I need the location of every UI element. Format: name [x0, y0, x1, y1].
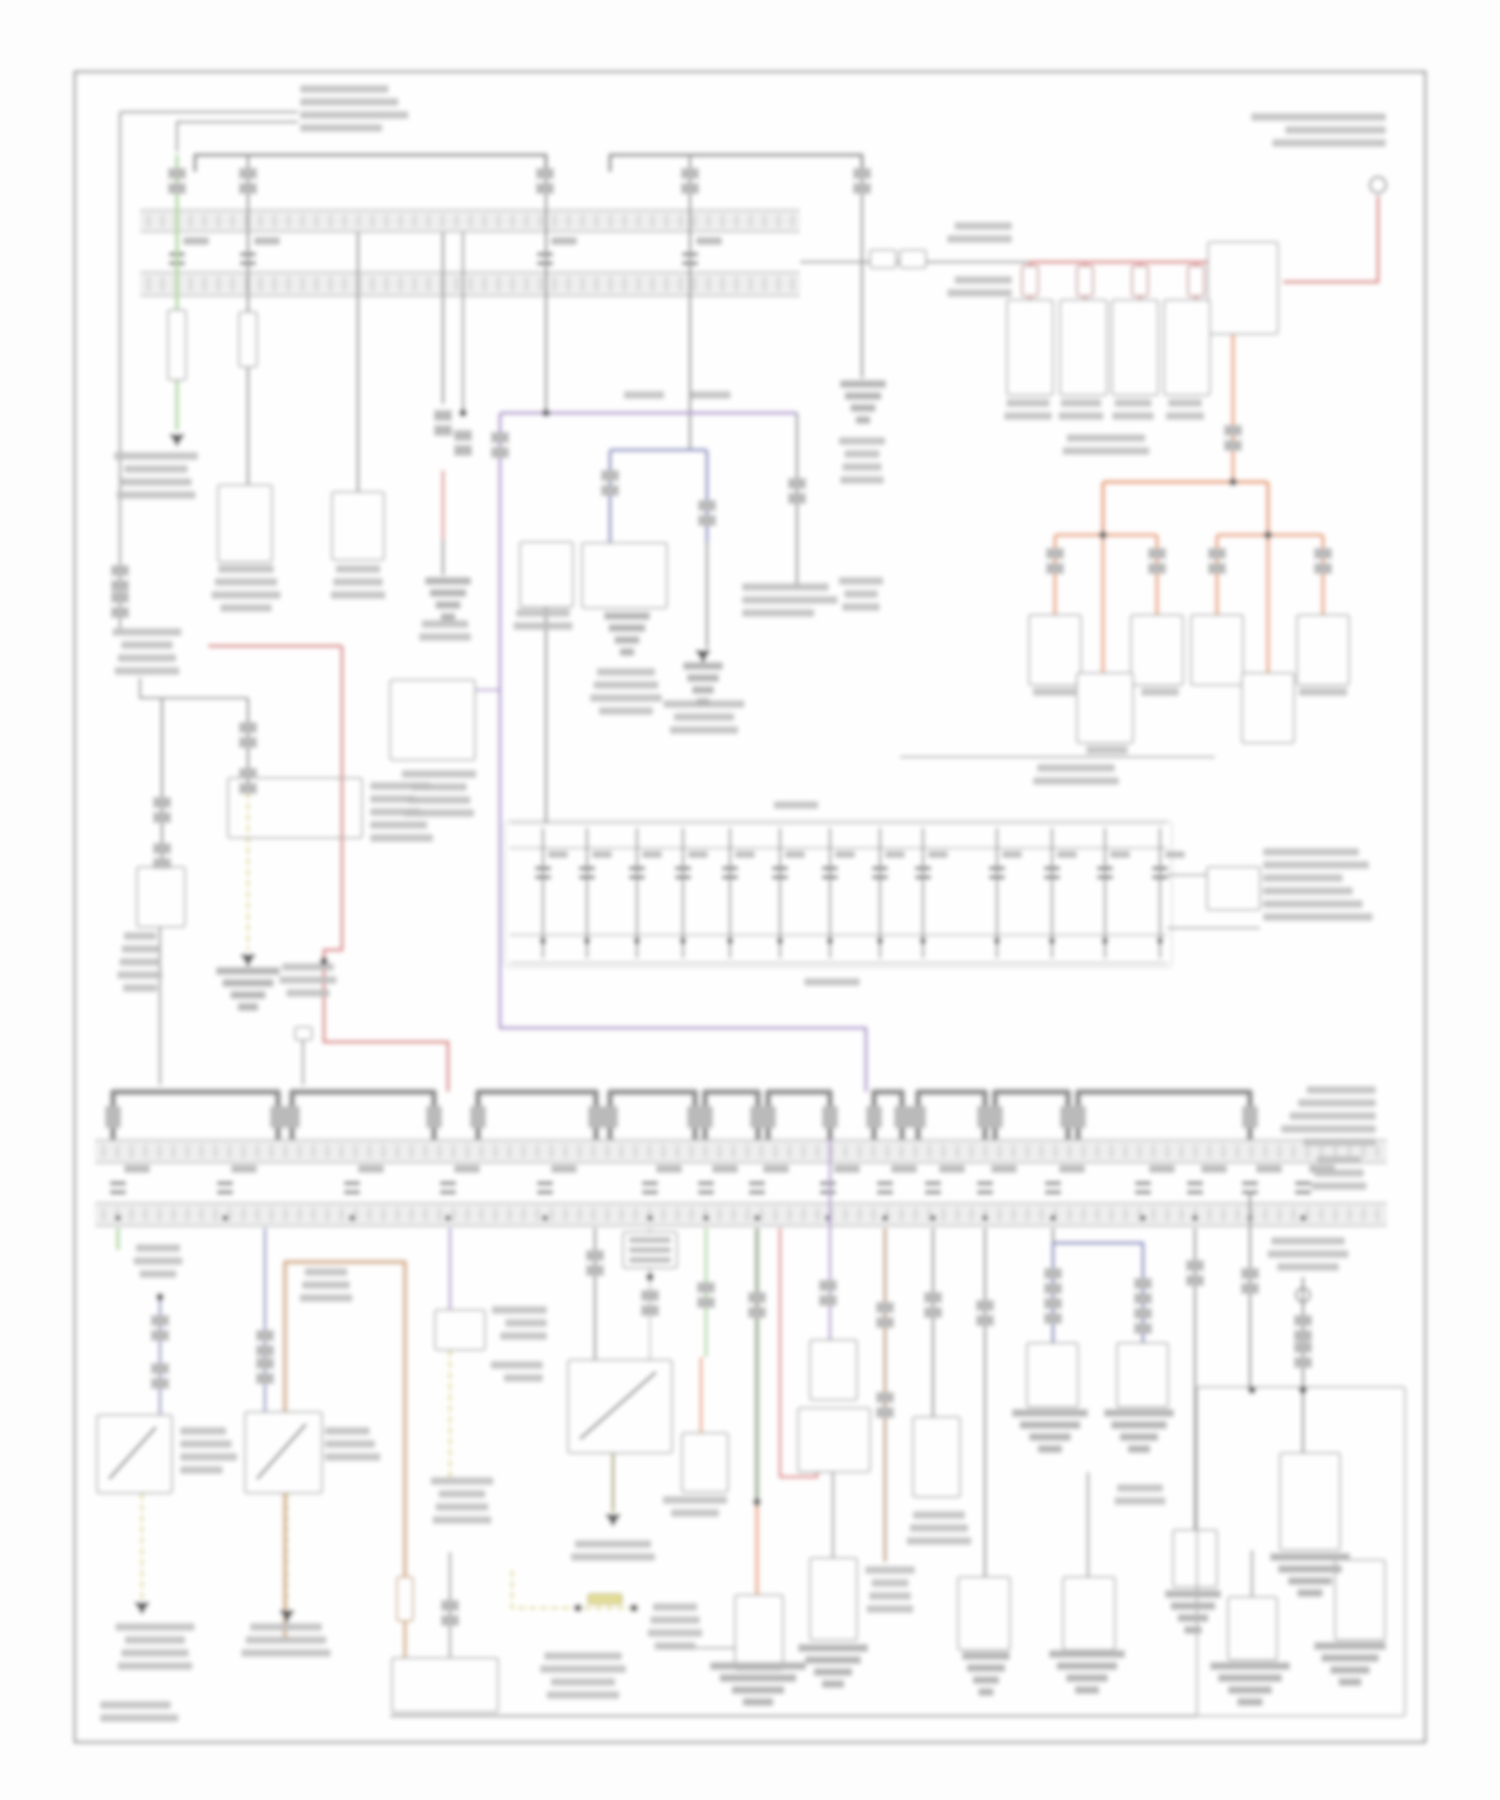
label-smudge: [370, 821, 427, 829]
label-smudge: [121, 1649, 189, 1657]
pin-tick: [511, 215, 514, 227]
connector-symbol: [454, 445, 472, 456]
junction-dot: [1264, 531, 1272, 539]
label-smudge: [910, 1524, 969, 1532]
label-smudge: [1289, 1112, 1376, 1120]
pin-tick: [455, 215, 458, 227]
label-smudge: [336, 565, 381, 573]
ground-symbol-bar: [697, 698, 710, 706]
pin-tick: [651, 277, 654, 291]
fuse-label-smudge: [656, 1165, 682, 1173]
pin-tick: [746, 1145, 749, 1158]
label-smudge: [505, 1319, 547, 1327]
label-smudge: [333, 578, 383, 586]
pin-tick: [1194, 1145, 1197, 1158]
pin-tick: [312, 1145, 315, 1158]
junction-dot: [542, 409, 550, 417]
pin-tick: [469, 277, 472, 291]
label-smudge: [774, 801, 819, 809]
connector-symbol: [1314, 548, 1332, 559]
pin-tick: [665, 215, 668, 227]
pin-tick: [452, 1208, 455, 1221]
fuse-label-smudge: [254, 237, 280, 245]
pin-tick: [427, 277, 430, 291]
label-smudge: [180, 1427, 226, 1435]
pin-tick: [1292, 1208, 1295, 1221]
label-smudge: [404, 809, 474, 817]
ground-symbol-bar: [720, 1674, 797, 1682]
label-smudge: [1058, 412, 1103, 420]
connector-symbol: [239, 722, 257, 733]
label-smudge: [804, 978, 860, 986]
fuse-icon: [698, 1190, 714, 1195]
label-smudge: [133, 1257, 182, 1265]
connector-symbol: [441, 1600, 459, 1611]
pin-tick: [259, 215, 262, 227]
label-smudge: [218, 565, 274, 573]
fuse-icon: [217, 1190, 233, 1195]
label-smudge: [100, 1701, 171, 1709]
pin-tick: [749, 277, 752, 291]
component-box: [1208, 242, 1278, 334]
fuse-icon: [579, 875, 595, 880]
component-box: [900, 250, 926, 268]
label-smudge: [547, 1691, 620, 1699]
ground-symbol-bar: [805, 1656, 861, 1664]
ground-symbol-bar: [1278, 1565, 1342, 1573]
pin-tick: [385, 277, 388, 291]
pin-tick: [1236, 1208, 1239, 1221]
connector-symbol: [153, 858, 171, 869]
label-smudge: [1314, 1169, 1364, 1177]
pin-tick: [480, 1145, 483, 1158]
label-smudge: [947, 235, 1012, 243]
pin-tick: [802, 1145, 805, 1158]
fuse-icon: [537, 1190, 553, 1195]
label-smudge: [279, 976, 336, 984]
junction-dot: [777, 938, 783, 944]
connector-symbol: [1134, 1323, 1152, 1334]
label-smudge: [871, 1579, 908, 1587]
fuse-icon: [1045, 1190, 1061, 1195]
label-smudge: [865, 1566, 915, 1574]
fuse-icon: [1187, 1181, 1203, 1186]
pin-tick: [1208, 1145, 1211, 1158]
pin-tick: [1152, 1208, 1155, 1221]
connector-symbol: [434, 425, 452, 436]
fuse-icon: [1187, 1190, 1203, 1195]
ground-symbol-bar: [230, 991, 265, 999]
pin-tick: [1054, 1145, 1057, 1158]
fuse-icon: [820, 1190, 836, 1195]
pin-tick: [1306, 1145, 1309, 1158]
connector-symbol: [441, 1615, 459, 1626]
connector-symbol: [153, 812, 171, 823]
label-smudge: [180, 1440, 232, 1448]
junction-dot: [630, 1604, 638, 1612]
arch-connector: [822, 1106, 838, 1128]
pin-tick: [1376, 1208, 1379, 1221]
connector-symbol: [1134, 1308, 1152, 1319]
ground-symbol-bar: [1338, 1678, 1361, 1686]
connector-symbol: [1044, 1268, 1062, 1279]
pin-tick: [679, 215, 682, 227]
label-smudge: [742, 609, 814, 617]
pin-tick: [956, 1208, 959, 1221]
junction-dot: [680, 938, 686, 944]
label-smudge: [1117, 1484, 1163, 1492]
label-smudge: [1303, 1138, 1376, 1146]
pin-tick: [900, 1145, 903, 1158]
label-smudge: [491, 1361, 543, 1369]
pin-tick: [1012, 1145, 1015, 1158]
connector-symbol: [1208, 563, 1226, 574]
ground-symbol-bar: [798, 1644, 868, 1652]
arch-connector: [426, 1106, 442, 1128]
ground-symbol-bar: [967, 1664, 1005, 1672]
pin-tick: [942, 1145, 945, 1158]
wiring-diagram-canvas: [0, 0, 1500, 1800]
ground-symbol-bar: [604, 612, 650, 620]
arch-connector: [270, 1106, 286, 1128]
pin-tick: [998, 1145, 1001, 1158]
pin-tick: [382, 1208, 385, 1221]
pin-tick: [343, 215, 346, 227]
arch-connector: [284, 1106, 300, 1128]
pin-tick: [1152, 1145, 1155, 1158]
pin-tick: [637, 215, 640, 227]
connector-symbol: [151, 1363, 169, 1374]
pin-tick: [217, 277, 220, 291]
connector-symbol: [454, 430, 472, 441]
label-smudge: [300, 98, 399, 106]
ground-symbol-bar: [1228, 1686, 1272, 1694]
label-smudge: [947, 289, 1012, 297]
pin-tick: [189, 215, 192, 227]
pin-tick: [844, 1145, 847, 1158]
fuse-icon: [675, 866, 691, 871]
junction-dot: [1248, 1386, 1256, 1394]
pin-tick: [1124, 1208, 1127, 1221]
connector-symbol: [853, 183, 871, 194]
fuse-icon: [629, 866, 645, 871]
label-smudge: [1141, 688, 1179, 696]
arch-connector: [910, 1106, 926, 1128]
label-smudge: [119, 958, 160, 966]
pin-tick: [581, 277, 584, 291]
label-smudge: [1285, 126, 1386, 134]
mid-fuse-label-smudge: [785, 851, 805, 858]
pin-tick: [483, 215, 486, 227]
connector-symbol: [491, 447, 509, 458]
connector-symbol: [256, 1358, 274, 1369]
pin-tick: [315, 277, 318, 291]
fuse-icon: [1044, 866, 1060, 871]
pin-tick: [385, 215, 388, 227]
fuse-icon: [1135, 1190, 1151, 1195]
fuse-icon: [1045, 1181, 1061, 1186]
component-box: [798, 1408, 870, 1472]
component-box: [1077, 673, 1133, 743]
label-smudge: [115, 1623, 194, 1631]
pin-tick: [203, 215, 206, 227]
label-smudge: [513, 622, 572, 630]
pin-tick: [634, 1145, 637, 1158]
label-smudge: [907, 1537, 972, 1545]
pin-tick: [410, 1208, 413, 1221]
junction-dot: [827, 938, 833, 944]
label-smudge: [599, 707, 653, 715]
junction-dot: [727, 938, 733, 944]
pin-tick: [536, 1208, 539, 1221]
ground-symbol-bar: [1075, 1686, 1099, 1694]
pin-tick: [371, 277, 374, 291]
label-smudge: [1114, 399, 1151, 407]
pin-tick: [144, 1208, 147, 1221]
arch-connector: [987, 1106, 1003, 1128]
pin-tick: [550, 1208, 553, 1221]
pin-tick: [676, 1208, 679, 1221]
connector-symbol: [819, 1280, 837, 1291]
label-smudge: [1263, 848, 1359, 856]
pin-tick: [469, 215, 472, 227]
pin-tick: [287, 277, 290, 291]
label-smudge: [431, 1477, 494, 1485]
pin-tick: [735, 215, 738, 227]
pin-tick: [763, 277, 766, 291]
pin-tick: [396, 1208, 399, 1221]
label-smudge: [653, 1603, 698, 1611]
pin-tick: [662, 1145, 665, 1158]
label-smudge: [112, 628, 181, 636]
connector-symbol: [976, 1300, 994, 1311]
label-smudge: [180, 1466, 223, 1474]
fuse-icon: [877, 1181, 893, 1186]
component-box: [392, 1658, 498, 1712]
component-box: [332, 492, 384, 560]
ground-symbol-bar: [973, 1676, 999, 1684]
connector-symbol: [1224, 440, 1242, 451]
fuse-icon: [915, 875, 931, 880]
switch-box: [97, 1415, 172, 1493]
pin-tick: [1264, 1145, 1267, 1158]
label-smudge: [1271, 1237, 1345, 1245]
component-box: [1007, 300, 1053, 395]
connector-symbol: [239, 168, 257, 179]
pin-tick: [522, 1208, 525, 1221]
connector-symbol: [111, 607, 129, 618]
component-box: [913, 1417, 960, 1497]
fuse-icon: [749, 1190, 765, 1195]
pin-tick: [900, 1208, 903, 1221]
label-smudge: [840, 476, 884, 484]
pin-tick: [567, 215, 570, 227]
ground-symbol-bar: [620, 648, 635, 656]
pin-tick: [326, 1208, 329, 1221]
pin-tick: [553, 215, 556, 227]
component-box: [582, 543, 667, 608]
fuse-label-smudge: [124, 1165, 150, 1173]
arch-connector: [588, 1106, 604, 1128]
pin-tick: [721, 215, 724, 227]
fuse-label-smudge: [551, 237, 577, 245]
connector-symbol: [151, 1330, 169, 1341]
ground-symbol-bar: [614, 636, 639, 644]
junction-dot: [349, 1215, 355, 1221]
pin-tick: [116, 1145, 119, 1158]
fuse-label-smudge: [834, 1165, 860, 1173]
pin-tick: [273, 277, 276, 291]
pin-tick: [998, 1208, 1001, 1221]
component-box: [1131, 615, 1183, 685]
label-smudge: [100, 1714, 179, 1722]
connector-symbol: [1186, 1260, 1204, 1271]
ground-symbol-bar: [1237, 1698, 1263, 1706]
label-smudge: [551, 1678, 616, 1686]
fuse-icon: [1097, 875, 1113, 880]
pin-tick: [1096, 1208, 1099, 1221]
pin-tick: [200, 1208, 203, 1221]
pin-tick: [203, 277, 206, 291]
mid-fuse-label-smudge: [1165, 851, 1185, 858]
label-smudge: [116, 491, 195, 499]
pin-tick: [466, 1208, 469, 1221]
pin-tick: [371, 215, 374, 227]
label-smudge: [1306, 1086, 1376, 1094]
pin-tick: [494, 1208, 497, 1221]
ground-symbol-bar: [978, 1688, 993, 1696]
pin-tick: [1320, 1208, 1323, 1221]
component-box: [397, 1577, 413, 1621]
pin-tick: [102, 1208, 105, 1221]
pin-tick: [312, 1208, 315, 1221]
label-smudge: [1263, 887, 1353, 895]
pin-tick: [287, 215, 290, 227]
connector-symbol: [1044, 1298, 1062, 1309]
label-smudge: [118, 1662, 193, 1670]
ground-symbol-bar: [425, 577, 471, 585]
label-smudge: [650, 1616, 700, 1624]
junction-dot: [920, 938, 926, 944]
mid-fuse-label-smudge: [688, 851, 708, 858]
pin-tick: [1362, 1208, 1365, 1221]
fuse-icon: [822, 866, 838, 871]
pin-tick: [651, 215, 654, 227]
connector-symbol: [681, 183, 699, 194]
pin-tick: [1082, 1145, 1085, 1158]
pin-tick: [1236, 1145, 1239, 1158]
pin-tick: [494, 1145, 497, 1158]
pin-tick: [438, 1145, 441, 1158]
junction-dot: [156, 1293, 164, 1301]
fuse-icon: [537, 1181, 553, 1186]
ground-symbol-bar: [850, 404, 875, 412]
label-smudge: [1263, 913, 1373, 921]
pin-tick: [413, 277, 416, 291]
connector-symbol: [151, 1378, 169, 1389]
ground-symbol-bar: [1111, 1421, 1167, 1429]
ground-symbol-bar: [238, 1003, 258, 1011]
fuse-icon: [1097, 866, 1113, 871]
fuse-icon: [110, 1181, 126, 1186]
label-smudge: [1317, 1156, 1361, 1164]
mid-fuse-label-smudge: [592, 851, 612, 858]
component-box: [168, 310, 186, 380]
switch-box: [245, 1412, 322, 1493]
fuse-icon: [749, 1181, 765, 1186]
pin-tick: [816, 1145, 819, 1158]
fuse-icon: [925, 1190, 941, 1195]
label-smudge: [492, 1306, 547, 1314]
pin-tick: [1362, 1145, 1365, 1158]
connector-symbol: [536, 168, 554, 179]
pin-tick: [228, 1208, 231, 1221]
pin-tick: [1180, 1208, 1183, 1221]
ground-symbol-bar: [1321, 1654, 1379, 1662]
pin-tick: [231, 277, 234, 291]
connector-symbol: [876, 1392, 894, 1403]
label-smudge: [118, 654, 177, 662]
connector-symbol: [239, 183, 257, 194]
pin-tick: [242, 1208, 245, 1221]
label-smudge: [1251, 113, 1386, 121]
pin-tick: [343, 277, 346, 291]
label-smudge: [419, 633, 471, 641]
fuse-icon: [344, 1190, 360, 1195]
pin-tick: [1068, 1145, 1071, 1158]
pin-tick: [1166, 1145, 1169, 1158]
pin-tick: [382, 1145, 385, 1158]
pin-tick: [707, 277, 710, 291]
fuse-label-smudge: [183, 237, 209, 245]
label-smudge: [1311, 1182, 1366, 1190]
arch-connector: [1242, 1106, 1258, 1128]
connector-symbol: [697, 1297, 715, 1308]
fuse-icon: [915, 866, 931, 871]
connector-symbol: [1046, 563, 1064, 574]
fuse-icon: [629, 875, 645, 880]
label-smudge: [1062, 447, 1149, 455]
ground-symbol-bar: [216, 967, 280, 975]
fuse-icon: [110, 1190, 126, 1195]
component-box: [1228, 1597, 1277, 1660]
pin-tick: [424, 1208, 427, 1221]
fuse-icon: [872, 875, 888, 880]
ground-symbol-bar: [1020, 1421, 1081, 1429]
connector-symbol: [698, 500, 716, 511]
connector-symbol: [1294, 1330, 1312, 1341]
pin-tick: [270, 1208, 273, 1221]
fuse-icon: [822, 875, 838, 880]
pin-tick: [1222, 1208, 1225, 1221]
arch-connector: [602, 1106, 618, 1128]
pin-tick: [200, 1145, 203, 1158]
ground-symbol-bar: [732, 1686, 785, 1694]
connector-symbol: [1294, 1357, 1312, 1368]
label-smudge: [1166, 412, 1204, 420]
connector-symbol: [111, 565, 129, 576]
pin-tick: [679, 277, 682, 291]
ground-symbol-bar: [814, 1668, 853, 1676]
pin-tick: [872, 1208, 875, 1221]
component-box: [1173, 1530, 1217, 1587]
pin-tick: [802, 1208, 805, 1221]
label-smudge: [120, 478, 192, 486]
component-box: [682, 1433, 728, 1492]
pin-tick: [606, 1145, 609, 1158]
fuse-label-smudge: [1059, 1165, 1085, 1173]
label-smudge: [844, 590, 878, 598]
